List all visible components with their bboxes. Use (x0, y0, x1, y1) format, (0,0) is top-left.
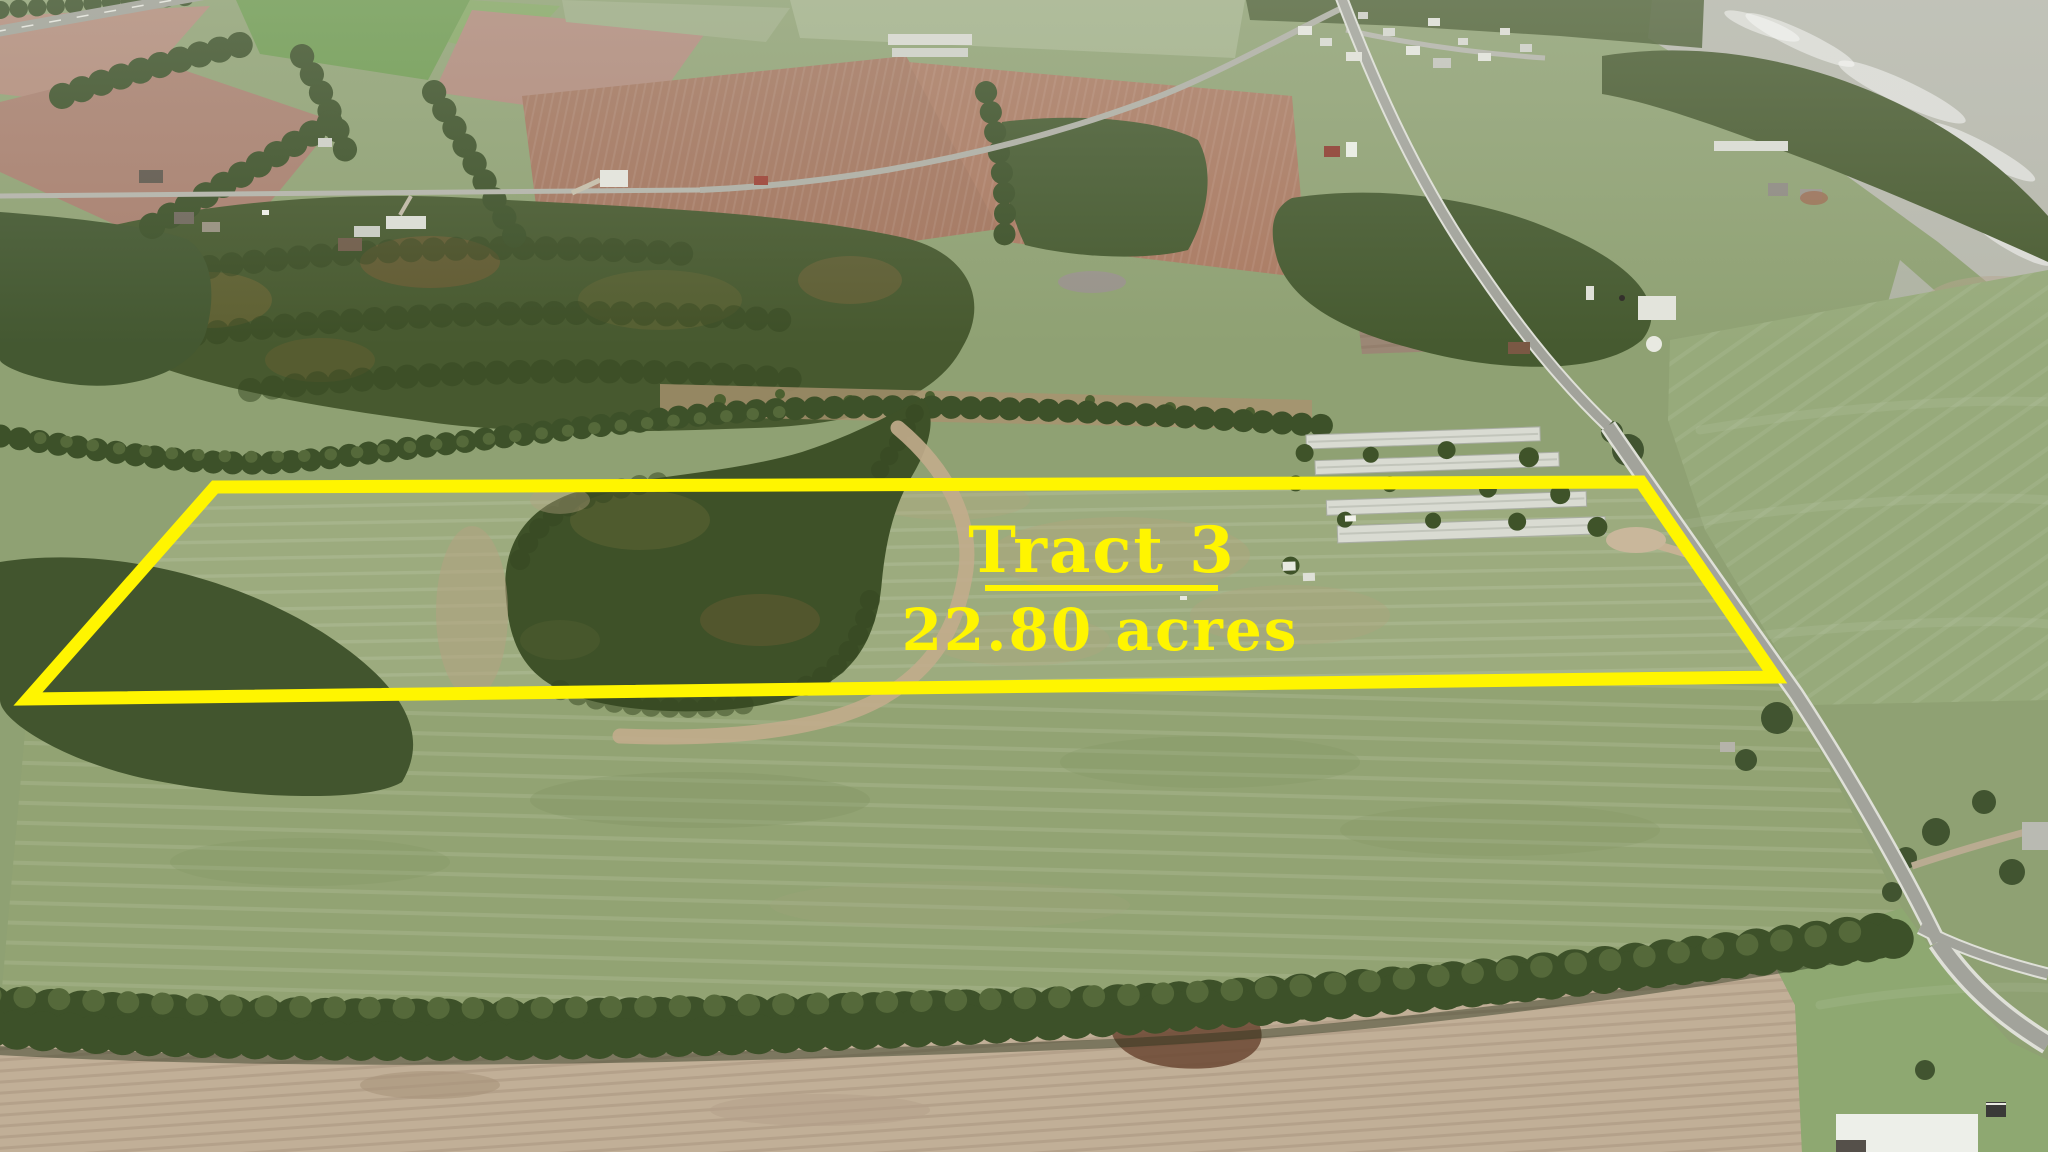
aerial-photo-stage: Tract 3 22.80 acres (0, 0, 2048, 1152)
tract-acreage-label: 22.80 acres (902, 596, 1299, 664)
aerial-photo: Tract 3 22.80 acres (0, 0, 2048, 1152)
tract-name-label: Tract 3 (968, 513, 1236, 588)
